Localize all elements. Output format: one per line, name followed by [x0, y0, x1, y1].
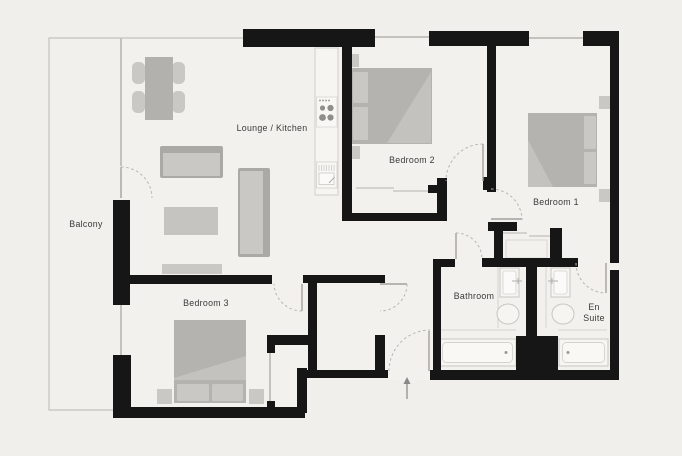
entrance-arrow-icon: [404, 377, 411, 399]
label-ensuite-line2: Suite: [583, 313, 605, 323]
pillow: [177, 384, 209, 401]
sink-icon: [317, 162, 338, 188]
dining-chair: [132, 62, 145, 84]
floorplan-drawing: Balcony Lounge / Kitchen Bedroom 2 Bedro…: [0, 0, 682, 456]
dining-chair: [132, 91, 145, 113]
bath-drain: [567, 351, 570, 354]
label-bedroom2: Bedroom 2: [389, 155, 435, 165]
pillow: [353, 107, 368, 140]
kitchen-counter: [315, 48, 338, 195]
nightstand: [249, 389, 264, 404]
pillow: [353, 72, 368, 103]
basin-bowl: [554, 271, 567, 294]
pillow: [584, 152, 596, 184]
pillow: [584, 116, 596, 149]
lounge-unit-seat: [240, 171, 263, 254]
sofa-seat: [163, 153, 220, 176]
nightstand: [157, 389, 172, 404]
toilet-ensuite: [552, 304, 574, 324]
floorplan-canvas: Balcony Lounge / Kitchen Bedroom 2 Bedro…: [0, 0, 682, 456]
toilet-bathroom: [497, 304, 519, 324]
label-bathroom: Bathroom: [454, 291, 495, 301]
dining-chair: [172, 62, 185, 84]
label-bedroom3: Bedroom 3: [183, 298, 229, 308]
pillow: [212, 384, 243, 401]
basin-bowl: [503, 271, 516, 294]
coffee-table: [164, 207, 218, 235]
sideboard: [162, 264, 222, 274]
label-bedroom1: Bedroom 1: [533, 197, 579, 207]
hob-panel: [317, 97, 338, 127]
dining-chair: [172, 91, 185, 113]
bathtub-inner: [443, 343, 513, 363]
label-ensuite-line1: En: [588, 302, 599, 312]
label-lounge-kitchen: Lounge / Kitchen: [237, 123, 308, 133]
dining-table: [145, 57, 173, 120]
label-balcony: Balcony: [69, 219, 103, 229]
hob-icon: [317, 97, 338, 127]
bath-drain: [505, 351, 508, 354]
